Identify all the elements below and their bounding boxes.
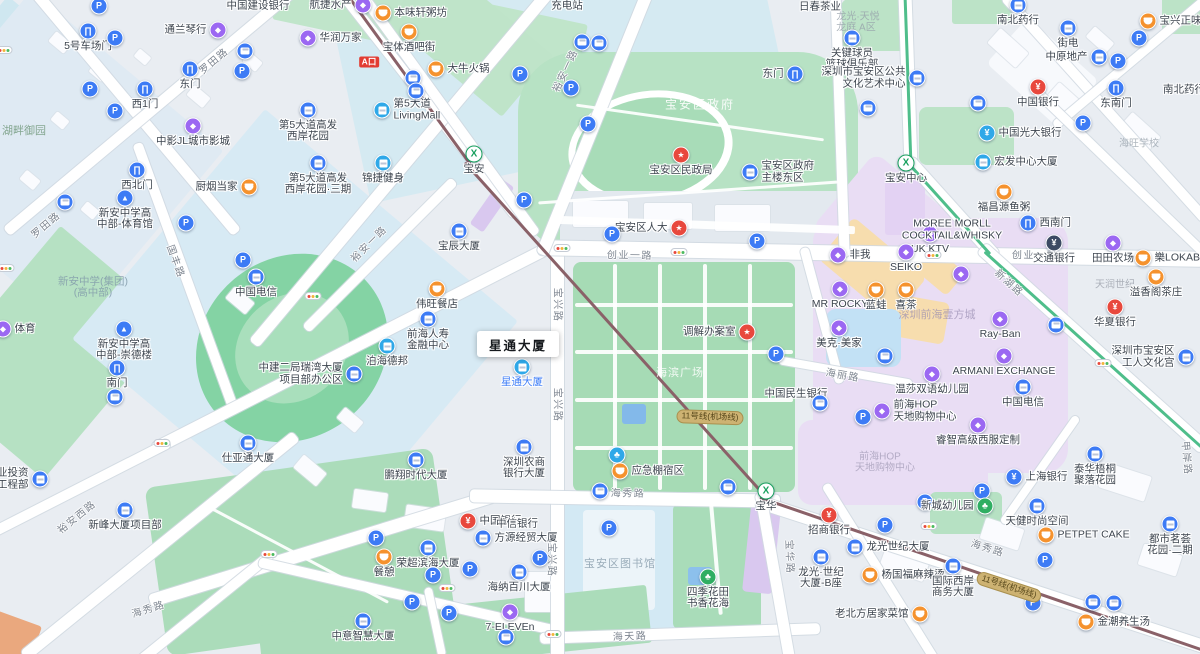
poi-label: 调解办案室 — [683, 326, 736, 338]
poi-label-group: 星通大厦 — [501, 377, 543, 389]
park-icon[interactable]: ♣ — [609, 447, 626, 464]
poi-label: 聚落花园 — [1074, 475, 1116, 487]
poi-label-group: 5号车场门 — [64, 41, 112, 53]
bank-icon[interactable]: ¥ — [979, 125, 996, 142]
poi-label-group: 伟旺餐店 — [416, 299, 458, 311]
traffic-light-icon — [154, 439, 171, 447]
gate-icon[interactable]: ∏ — [1108, 80, 1125, 97]
bld-icon[interactable] — [844, 30, 861, 47]
poi-label: 大牛火锅 — [448, 63, 490, 75]
gate-icon[interactable]: ∏ — [787, 66, 804, 83]
road-name-label: 宝兴路 — [552, 288, 567, 323]
bld-icon[interactable] — [420, 311, 437, 328]
poi-label-group: 锦捷健身 — [362, 173, 404, 185]
poi-label-group: 中意智慧大厦 — [332, 631, 395, 643]
poi-label: 国际西岸 — [932, 576, 974, 588]
poi-label-group: 西南门 — [1040, 217, 1072, 229]
poi-label-group: 前海人寿金融中心 — [407, 329, 449, 352]
poi-label: 华润万家 — [320, 32, 362, 44]
poi-label: 方源经贸大厦 — [495, 532, 558, 544]
p-icon[interactable]: P — [234, 63, 251, 80]
bld-icon[interactable] — [346, 366, 363, 383]
poi-label-group: 宝安中心 — [885, 173, 927, 185]
poi-label: 宝安区人大 — [615, 222, 668, 234]
poi-label: 中国电信 — [235, 287, 277, 299]
traffic-light-icon — [0, 264, 15, 272]
gate-icon[interactable]: ∏ — [129, 162, 146, 179]
poi-label-group: 宝华 — [756, 501, 777, 513]
poi-label: 中建二局瑞湾大厦 — [259, 363, 343, 375]
poi-label: 美克·美家 — [816, 338, 862, 350]
food-icon[interactable] — [241, 179, 258, 196]
poi-label: 南北药行 — [997, 15, 1039, 27]
poi-label: 主楼东区 — [762, 172, 804, 184]
poi-label-group: SEIKO — [890, 262, 922, 274]
poi-label: 龙光·世纪 — [798, 567, 844, 579]
metro-station-icon[interactable]: X — [758, 483, 775, 500]
map-canvas[interactable]: 星通大厦 P中国建设银行◆通兰琴行◆华润万家∏5号车场门PP∏东门∏西1门PP◆… — [0, 0, 1200, 654]
shop-icon[interactable]: ◆ — [953, 266, 970, 283]
food-icon[interactable] — [1140, 13, 1157, 30]
poi-label: 四季花田 — [687, 587, 729, 599]
poi-label: PETPET CAKE — [1058, 529, 1130, 541]
bld-icon[interactable] — [1029, 498, 1046, 515]
poi-label: 航捷水产 — [310, 0, 352, 11]
gate-icon[interactable]: ∏ — [80, 23, 97, 40]
bld-icon[interactable] — [408, 452, 425, 469]
poi-label: 泊海德邦 — [366, 356, 408, 368]
bld-icon[interactable] — [1178, 349, 1195, 366]
poi-label: 中国建设银行 — [227, 0, 290, 12]
shop-icon[interactable]: ◆ — [831, 320, 848, 337]
road-name-label: 甲岸路 — [1179, 440, 1197, 476]
food-icon[interactable] — [862, 567, 879, 584]
poi-label-group: 中国建设银行 — [227, 0, 290, 12]
poi-label: 街电 — [1058, 38, 1079, 50]
poi-label-group: 航捷水产 — [310, 0, 352, 11]
poi-label: 银行大厦 — [503, 468, 545, 480]
bld-icon[interactable] — [813, 549, 830, 566]
district-label: 湖畔御园 — [2, 122, 46, 138]
food-icon[interactable] — [376, 549, 393, 566]
poi-label: 鹏翔时代大厦 — [385, 470, 448, 482]
poi-label-group: 调解办案室 — [683, 326, 736, 338]
poi-label-group: 田田农场 — [1092, 253, 1134, 265]
bus-icon[interactable] — [592, 483, 609, 500]
p-icon[interactable]: P — [462, 561, 479, 578]
poi-label: 海纳百川大厦 — [488, 582, 551, 594]
poi-label: 南北药行 — [1163, 84, 1200, 96]
poi-label: 中国电信 — [1002, 397, 1044, 409]
poi-label-group: 非我 — [850, 249, 871, 261]
p-icon[interactable]: P — [1075, 115, 1092, 132]
p-icon[interactable]: P — [604, 226, 621, 243]
poi-label: 区产业投资 — [0, 468, 29, 480]
bank-icon[interactable]: ¥ — [1006, 469, 1023, 486]
p-icon[interactable]: P — [877, 517, 894, 534]
shop-icon[interactable]: ◆ — [502, 604, 519, 621]
poi-label: 新峰大厦项目部 — [88, 520, 162, 532]
poi-label-group: 深圳市宝安区公共文化艺术中心 — [822, 67, 906, 90]
food-icon[interactable] — [1078, 614, 1095, 631]
district-label: 宝安区政府 — [665, 96, 735, 113]
bus-icon[interactable] — [1085, 594, 1102, 611]
shop-icon[interactable]: ◆ — [992, 311, 1009, 328]
traffic-light-icon — [1095, 359, 1112, 367]
poi-label: 东门 — [763, 68, 784, 80]
poi-label-group: 龙光世纪大厦 — [867, 541, 930, 553]
poi-label: 餐憩 — [374, 567, 395, 579]
traffic-light-icon — [921, 522, 938, 530]
bld-icon[interactable] — [847, 539, 864, 556]
poi-label-group: 仕亚通大厦 — [222, 453, 275, 465]
food-icon[interactable] — [1148, 269, 1165, 286]
bus-icon[interactable] — [574, 34, 591, 51]
gov-icon[interactable]: ★ — [671, 220, 688, 237]
road-name-label: 宝华路 — [783, 539, 799, 574]
gate-icon[interactable]: ∏ — [109, 360, 126, 377]
poi-label-group: 中国电信 — [1002, 397, 1044, 409]
road-name-label: 海天路 — [612, 627, 647, 643]
poi-label: 充电站 — [551, 0, 583, 12]
building-footprint — [133, 48, 151, 65]
poi-label: Ray-Ban — [980, 329, 1021, 341]
p-icon[interactable]: P — [1110, 53, 1127, 70]
poi-label: 宝体酒吧街 — [383, 42, 436, 54]
shop-icon[interactable]: ◆ — [996, 348, 1013, 365]
bld-icon[interactable] — [1087, 446, 1104, 463]
poi-label-group: 西1门 — [132, 99, 159, 111]
shop-icon[interactable]: ◆ — [210, 22, 227, 39]
poi-label: LivingMall — [394, 110, 441, 122]
poi-label: 喜茶 — [896, 300, 917, 312]
poi-label: 伟旺餐店 — [416, 299, 458, 311]
food-icon[interactable] — [612, 463, 629, 480]
poi-label: 星通大厦 — [501, 377, 543, 389]
bld-icon[interactable] — [420, 540, 437, 557]
bld-icon[interactable] — [240, 435, 257, 452]
poi-label: 商务大厦 — [932, 587, 974, 599]
p-icon[interactable]: P — [441, 605, 458, 622]
bld-icon[interactable] — [1060, 20, 1077, 37]
poi-label: 泰华梧桐 — [1074, 464, 1116, 476]
p-icon[interactable]: P — [580, 116, 597, 133]
poi-label: 宝安区民政局 — [650, 165, 713, 177]
p-icon[interactable]: P — [91, 0, 108, 15]
poi-label-group: 上海银行 — [1026, 471, 1068, 483]
poi-label: 非我 — [850, 249, 871, 261]
poi-label-group: 方源经贸大厦 — [495, 532, 558, 544]
poi-label: 宏发中心大厦 — [995, 156, 1058, 168]
poi-label: 溢香阁茶庄 — [1130, 287, 1183, 299]
poi-label: 天地购物中心 — [894, 411, 957, 423]
poi-label-group: 睿智高级西服定制 — [936, 435, 1020, 447]
bld-icon[interactable] — [742, 164, 759, 181]
poi-label: 日春茶业 — [799, 1, 841, 13]
p-icon[interactable]: P — [178, 215, 195, 232]
poi-label: 宝安 — [464, 164, 485, 176]
gate-icon[interactable]: ∏ — [137, 81, 154, 98]
poi-label: 体育 — [15, 323, 36, 335]
bld-icon[interactable] — [475, 530, 492, 547]
food-icon[interactable] — [1135, 250, 1152, 267]
poi-label-group: 本味轩粥坊 — [395, 7, 448, 19]
p-icon[interactable]: P — [749, 233, 766, 250]
bank-icon[interactable]: ¥ — [1107, 299, 1124, 316]
poi-label: 南门 — [107, 378, 128, 390]
p-icon[interactable]: P — [82, 81, 99, 98]
poi-label-group: 华夏银行 — [1094, 317, 1136, 329]
poi-label-group: 中原地产 — [1046, 51, 1088, 63]
bus-icon[interactable] — [970, 95, 987, 112]
poi-label-group: 第5大道LivingMall — [394, 99, 441, 122]
map-area-park-pond — [622, 404, 646, 424]
bld-icon[interactable] — [300, 102, 317, 119]
p-icon[interactable]: P — [563, 80, 580, 97]
poi-label: 金潮养生汤 — [1098, 616, 1151, 628]
poi-label-group: 樂LOKABAR — [1155, 252, 1200, 264]
poi-label-group: 宝兴正味 — [1160, 15, 1200, 27]
poi-label: 深圳农商 — [503, 457, 545, 469]
food-icon[interactable] — [898, 282, 915, 299]
district-label: 海旺学校 — [1119, 135, 1159, 150]
shop-icon[interactable]: ◆ — [832, 281, 849, 298]
poi-label-group: 区产业投资大厦工程部 — [0, 468, 29, 491]
poi-label: 睿智高级西服定制 — [936, 435, 1020, 447]
gate-icon[interactable]: ∏ — [1020, 215, 1037, 232]
poi-label: 中意智慧大厦 — [332, 631, 395, 643]
poi-label: 中影JL城市影城 — [156, 136, 230, 148]
bld-icon[interactable] — [32, 471, 49, 488]
bank-icon[interactable]: ¥ — [821, 507, 838, 524]
poi-label: 中原地产 — [1046, 51, 1088, 63]
poi-label-group: 厨烟当家 — [196, 181, 238, 193]
poi-label: 交通银行 — [1033, 253, 1075, 265]
bus-icon[interactable] — [860, 100, 877, 117]
poi-label: 前海人寿 — [407, 329, 449, 341]
food-icon[interactable] — [868, 282, 885, 299]
bld-icon[interactable] — [516, 439, 533, 456]
poi-label-group: 日春茶业 — [799, 1, 841, 13]
poi-label: 第5大道高发 — [289, 173, 347, 185]
poi-label-group: 美克·美家 — [816, 338, 862, 350]
poi-label: 西岸花园 — [287, 131, 329, 143]
bld-icon[interactable] — [451, 223, 468, 240]
poi-label-group: 新安中学高中部-体育馆 — [97, 208, 153, 231]
food-icon[interactable] — [912, 606, 929, 623]
shop-icon[interactable]: ◆ — [300, 30, 317, 47]
poi-label-group: 都市茗荟花园·二期 — [1147, 534, 1193, 557]
bld-icon[interactable] — [379, 338, 396, 355]
gov-icon[interactable]: ★ — [673, 147, 690, 164]
district-label: 天地购物中心 — [855, 459, 915, 474]
poi-label-group: 大牛火锅 — [448, 63, 490, 75]
poi-label: 通兰琴行 — [165, 24, 207, 36]
shop-icon[interactable]: ◆ — [1105, 235, 1122, 252]
poi-label-group: PETPET CAKE — [1058, 529, 1130, 541]
poi-label: 锦捷健身 — [362, 173, 404, 185]
shop-icon[interactable]: ◆ — [185, 118, 202, 135]
poi-label: 西岸花园·三期 — [285, 184, 352, 196]
park-path — [575, 446, 793, 450]
poi-label: 文化艺术中心 — [843, 78, 906, 90]
poi-label: 本味轩粥坊 — [395, 7, 448, 19]
poi-label-group: 喜茶 — [896, 300, 917, 312]
food-icon[interactable] — [1038, 527, 1055, 544]
p-icon[interactable]: P — [404, 594, 421, 611]
bld-icon[interactable] — [909, 70, 926, 87]
bus-icon[interactable] — [498, 629, 515, 646]
metro-station-icon[interactable]: X — [466, 146, 483, 163]
bld-icon[interactable] — [355, 613, 372, 630]
shop-icon[interactable]: ◆ — [970, 417, 987, 434]
poi-label-group: 中信银行 — [496, 518, 538, 530]
poi-label-group: 中建二局瑞湾大厦项目部办公区 — [259, 363, 343, 386]
p-icon[interactable]: P — [1131, 30, 1148, 47]
poi-label: COCKTAIL&WHISKY — [902, 230, 1002, 242]
poi-label: 天健时尚空间 — [1006, 516, 1069, 528]
poi-label: 宝兴正味 — [1160, 15, 1200, 27]
poi-label-group: 宏发中心大厦 — [995, 156, 1058, 168]
bld-icon[interactable] — [248, 269, 265, 286]
poi-label-group: 东门 — [763, 68, 784, 80]
poi-label-group: 中国电信 — [235, 287, 277, 299]
poi-label-group: 龙光·世纪大厦-B座 — [798, 567, 844, 590]
p-icon[interactable]: P — [516, 192, 533, 209]
food-icon[interactable] — [375, 5, 392, 22]
metro-line-badge: 11号线(机场线) — [975, 570, 1043, 604]
p-icon[interactable]: P — [107, 103, 124, 120]
shop-icon[interactable]: ◆ — [830, 247, 847, 264]
bank-icon[interactable]: ¥ — [1046, 235, 1063, 252]
poi-label: 中信银行 — [496, 518, 538, 530]
poi-label-group: 中国银行 — [1017, 97, 1059, 109]
bus-icon[interactable] — [57, 194, 74, 211]
poi-label: 仕亚通大厦 — [222, 453, 275, 465]
p-icon[interactable]: P — [512, 66, 529, 83]
p-icon[interactable]: P — [855, 409, 872, 426]
traffic-light-icon — [0, 46, 13, 54]
traffic-light-icon — [439, 584, 456, 592]
poi-label: 关键球员 — [831, 48, 873, 60]
poi-label: SEIKO — [890, 262, 922, 274]
p-icon[interactable]: P — [768, 346, 785, 363]
poi-label: 东南门 — [1100, 98, 1132, 110]
bld-icon[interactable] — [1091, 49, 1108, 66]
poi-label-group: 宝辰大厦 — [438, 241, 480, 253]
road-name-label: 海秀路 — [611, 484, 646, 500]
poi-label-group: 温莎双语幼儿园 — [895, 384, 969, 396]
poi-label: 宝安区政府 — [762, 161, 815, 173]
food-icon[interactable] — [428, 61, 445, 78]
park-path — [575, 350, 793, 354]
poi-label-group: 通兰琴行 — [165, 24, 207, 36]
bld-icon[interactable] — [945, 558, 962, 575]
bld-icon[interactable] — [375, 155, 392, 172]
poi-label-group: 鹏翔时代大厦 — [385, 470, 448, 482]
park-icon[interactable]: ♣ — [700, 569, 717, 586]
shop-icon[interactable]: ◆ — [874, 403, 891, 420]
poi-label-group: 华润万家 — [320, 32, 362, 44]
bank-icon[interactable]: ¥ — [460, 513, 477, 530]
poi-label-group: ARMANI EXCHANGE — [953, 366, 1056, 378]
bank-icon[interactable]: ¥ — [1030, 79, 1047, 96]
park-path — [748, 264, 752, 490]
poi-label: 温莎双语幼儿园 — [895, 384, 969, 396]
bld-icon[interactable] — [1162, 516, 1179, 533]
school-icon[interactable]: ▲ — [116, 321, 133, 338]
bus-icon[interactable] — [591, 35, 608, 52]
bus-icon[interactable] — [812, 395, 829, 412]
poi-label-group: 东南门 — [1100, 98, 1132, 110]
bus-icon[interactable] — [107, 389, 124, 406]
food-icon[interactable] — [996, 184, 1013, 201]
bus-icon[interactable] — [408, 83, 425, 100]
poi-label: 大厦工程部 — [0, 479, 29, 491]
poi-label-group: 充电站 — [551, 0, 583, 12]
p-icon[interactable]: P — [601, 520, 618, 537]
bus-icon[interactable] — [1106, 595, 1123, 612]
p-icon[interactable]: P — [1037, 552, 1054, 569]
highlighted-building-label[interactable]: 星通大厦 — [477, 331, 559, 357]
traffic-light-icon — [554, 244, 571, 252]
bus-icon[interactable] — [237, 43, 254, 60]
bld-icon[interactable] — [117, 502, 134, 519]
poi-label-group: 福昌源鱼粥 — [978, 202, 1031, 214]
poi-label-group: 交通银行 — [1033, 253, 1075, 265]
metro-exit-badge: A口 — [359, 57, 379, 68]
poi-label: 深圳市宝安区 — [1112, 346, 1175, 358]
poi-label: 樂LOKABAR — [1155, 252, 1200, 264]
metro-line-badge: 11号线(机场线) — [676, 409, 743, 425]
poi-label-group: 泊海德邦 — [366, 356, 408, 368]
poi-label-group: 第5大道高发西岸花园 — [279, 120, 337, 143]
bus-icon[interactable] — [720, 479, 737, 496]
poi-label: 都市茗荟 — [1149, 534, 1191, 546]
food-icon[interactable] — [429, 281, 446, 298]
p-icon[interactable]: P — [425, 567, 442, 584]
bld-icon[interactable] — [374, 102, 391, 119]
bld-icon[interactable] — [511, 564, 528, 581]
bus-icon[interactable] — [877, 348, 894, 365]
p-icon[interactable]: P — [368, 530, 385, 547]
school-icon[interactable]: ▲ — [117, 190, 134, 207]
poi-label: 福昌源鱼粥 — [978, 202, 1031, 214]
park-icon[interactable]: ♣ — [977, 498, 994, 515]
metro-station-icon[interactable]: X — [898, 155, 915, 172]
road-name-label: 罗田路 — [195, 43, 231, 77]
poi-label: 花园·二期 — [1147, 545, 1193, 557]
p-icon[interactable]: P — [532, 550, 549, 567]
bld-icon[interactable] — [975, 154, 992, 171]
p-icon[interactable]: P — [107, 30, 124, 47]
gov-icon[interactable]: ★ — [739, 324, 756, 341]
poi-label-group: 南门 — [107, 378, 128, 390]
food-icon[interactable] — [401, 24, 418, 41]
p-icon[interactable]: P — [235, 252, 252, 269]
poi-label-group: 天健时尚空间 — [1006, 516, 1069, 528]
bld-icon[interactable] — [310, 155, 327, 172]
shop-icon[interactable]: ◆ — [924, 366, 941, 383]
shop-icon[interactable]: ◆ — [898, 244, 915, 261]
bld-icon[interactable] — [1015, 379, 1032, 396]
poi-label-group: 东门 — [180, 79, 201, 91]
poi-label: 中国银行 — [1017, 97, 1059, 109]
poi-label-group: 新峰大厦项目部 — [88, 520, 162, 532]
bus-icon[interactable] — [1048, 317, 1065, 334]
bld-icon[interactable] — [514, 359, 531, 376]
gate-icon[interactable]: ∏ — [182, 61, 199, 78]
